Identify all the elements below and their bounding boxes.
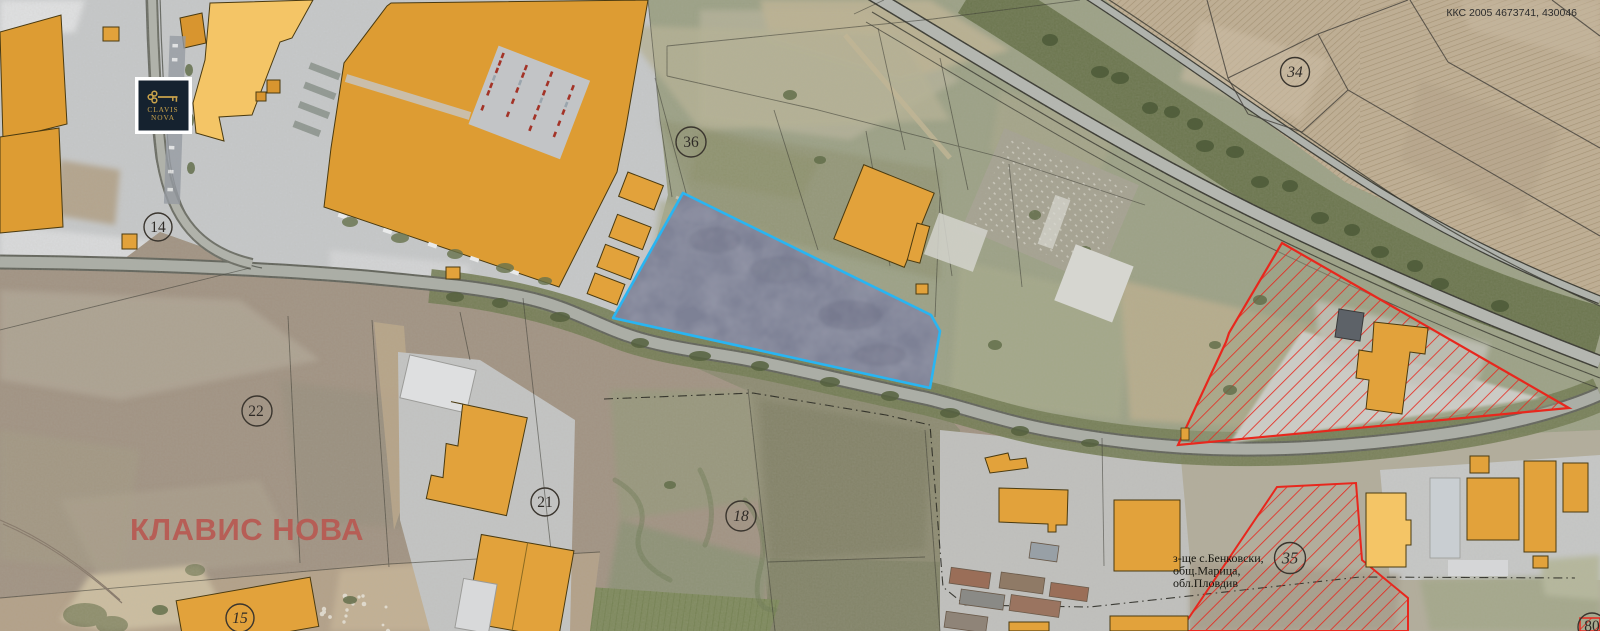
svg-text:15: 15: [232, 610, 248, 627]
svg-text:14: 14: [150, 219, 166, 236]
svg-text:ККС 2005 4673741, 430046: ККС 2005 4673741, 430046: [1446, 7, 1577, 19]
svg-text:обл.Пловдив: обл.Пловдив: [1173, 576, 1238, 590]
svg-text:22: 22: [248, 403, 264, 420]
svg-text:21: 21: [537, 494, 553, 511]
svg-text:80: 80: [1584, 618, 1600, 631]
svg-text:36: 36: [683, 134, 699, 151]
svg-text:18: 18: [733, 508, 749, 525]
svg-text:КЛАВИС НОВА: КЛАВИС НОВА: [130, 512, 364, 547]
svg-text:35: 35: [1281, 549, 1299, 568]
svg-text:34: 34: [1286, 64, 1303, 81]
svg-text:NOVA: NOVA: [151, 113, 175, 122]
